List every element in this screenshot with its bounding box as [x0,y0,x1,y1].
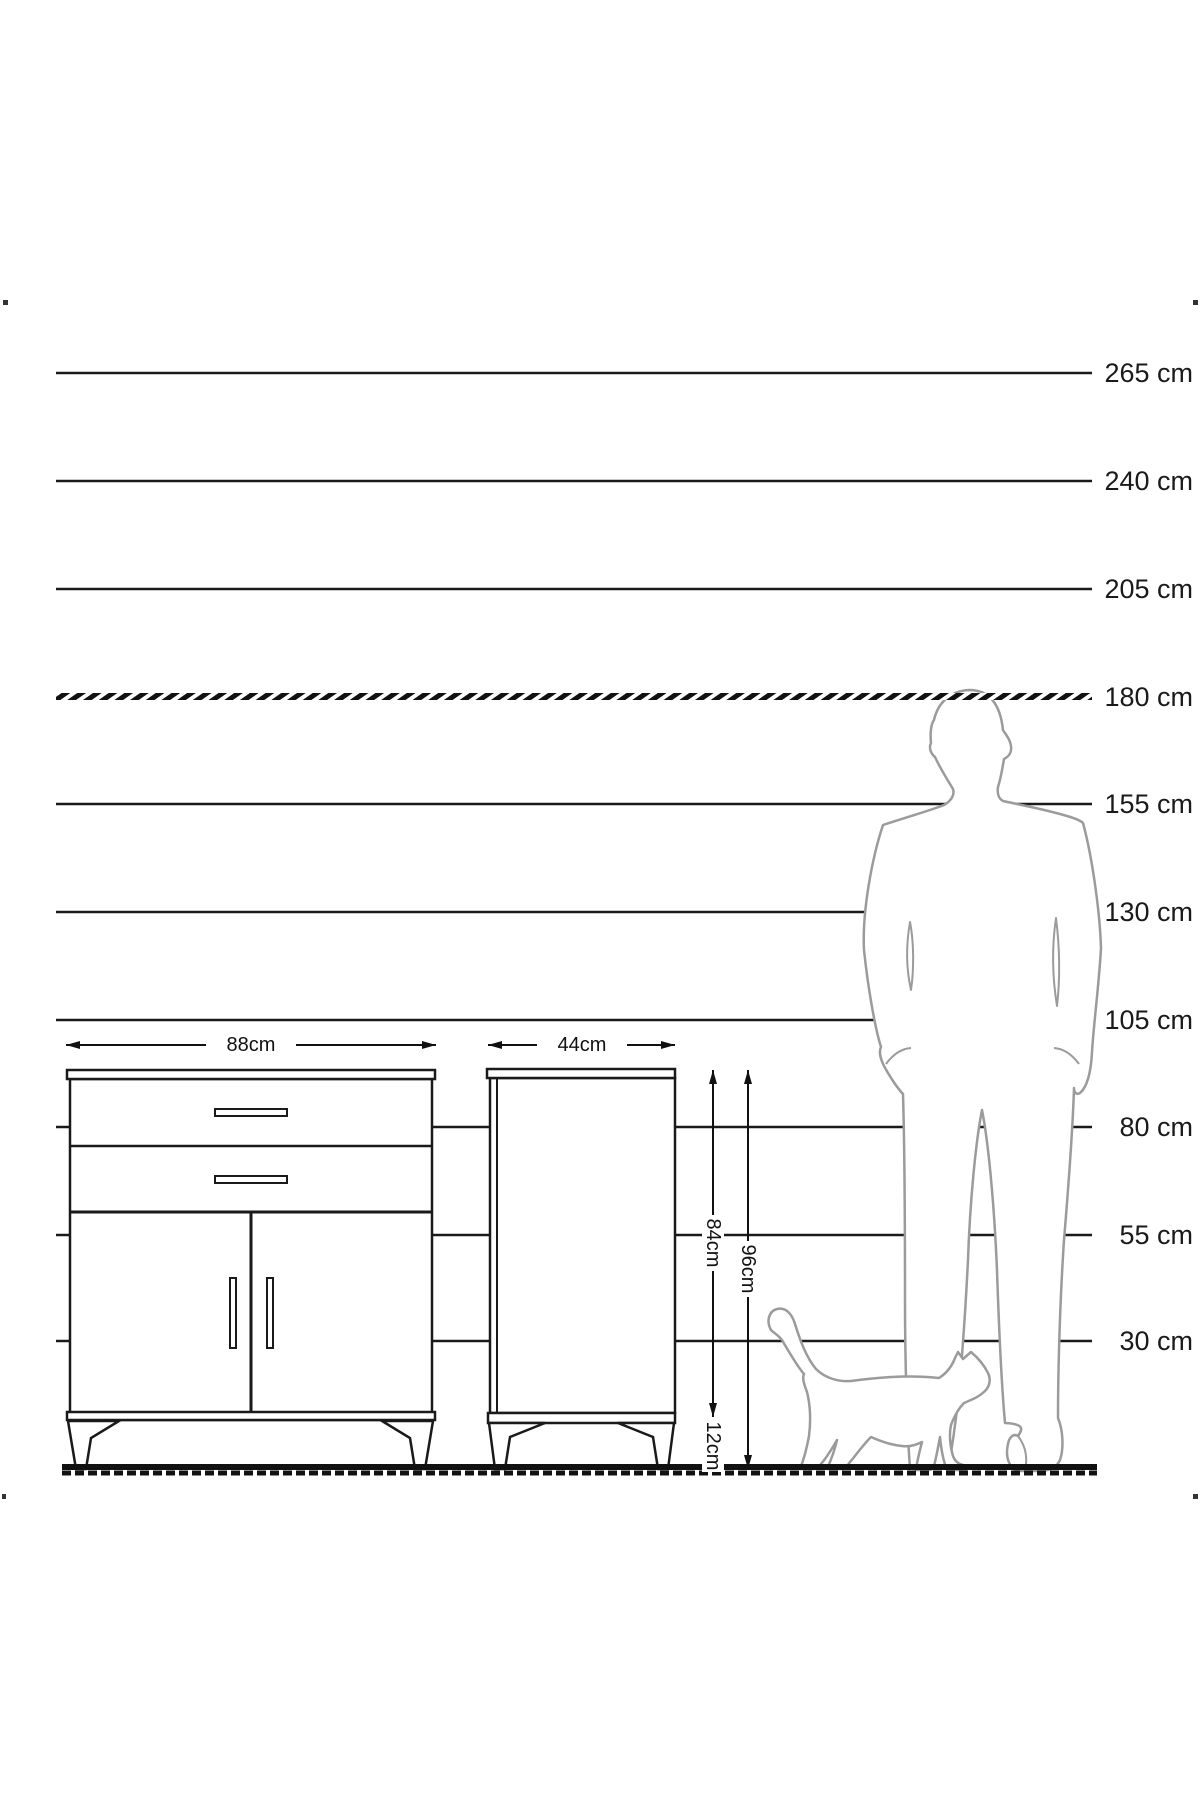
drawer-handle [215,1176,287,1183]
scale-label-180: 180 cm [1104,679,1193,715]
scale-label-80: 80 cm [1119,1109,1193,1145]
door-handle [267,1278,273,1348]
cabinet-side-body [490,1078,675,1413]
cabinet-leg [618,1423,674,1469]
crop-mark-dot [1193,300,1198,305]
scale-label-55: 55 cm [1119,1217,1193,1253]
cabinet-leg [382,1421,433,1469]
scale-label-30: 30 cm [1119,1323,1193,1359]
total-height-dimension-label: 96cm [737,1241,759,1297]
arrowhead-right [661,1041,675,1049]
arrowhead-right [422,1041,436,1049]
cabinet-leg [489,1423,545,1469]
arrowhead-left [66,1041,80,1049]
ground-line-bar [62,1464,1097,1470]
arrowhead-down [709,1403,717,1417]
scale-label-130: 130 cm [1104,894,1193,930]
scale-label-155: 155 cm [1104,786,1193,822]
crop-mark-dot [1193,1494,1198,1499]
arrowhead-left [488,1041,502,1049]
cabinet-side-view [487,1069,675,1469]
man-silhouette [864,690,1101,1471]
depth-dimension-label: 44cm [537,1034,627,1056]
arrowhead-up [744,1070,752,1084]
front-width-dimension-label: 88cm [206,1034,296,1056]
diagram-linework [0,0,1200,1800]
cabinet-front-view [67,1070,435,1469]
ground-line [62,1464,1097,1473]
scale-label-240: 240 cm [1104,463,1193,499]
cabinet-front-top-board [67,1070,435,1079]
scale-line-180-hatched [56,693,1092,700]
scale-label-205: 205 cm [1104,571,1193,607]
scale-label-265: 265 cm [1104,355,1193,391]
furniture-dimension-diagram: 265 cm 240 cm 205 cm 180 cm 155 cm 130 c… [0,0,1200,1800]
leg-height-dimension-label: 12cm [702,1420,724,1472]
cabinet-leg [68,1421,119,1469]
cabinet-front-bottom-board [67,1412,435,1420]
cabinet-side-bottom-board [488,1413,675,1423]
door-handle [230,1278,236,1348]
cabinet-side-top-board [487,1069,675,1078]
crop-mark-dot [3,300,8,305]
arrowhead-up [709,1070,717,1084]
scale-label-105: 105 cm [1104,1002,1193,1038]
crop-mark-dot [2,1494,6,1499]
man-body-outline [864,690,1101,1471]
body-height-dimension-label: 84cm [702,1215,724,1271]
drawer-handle [215,1109,287,1116]
